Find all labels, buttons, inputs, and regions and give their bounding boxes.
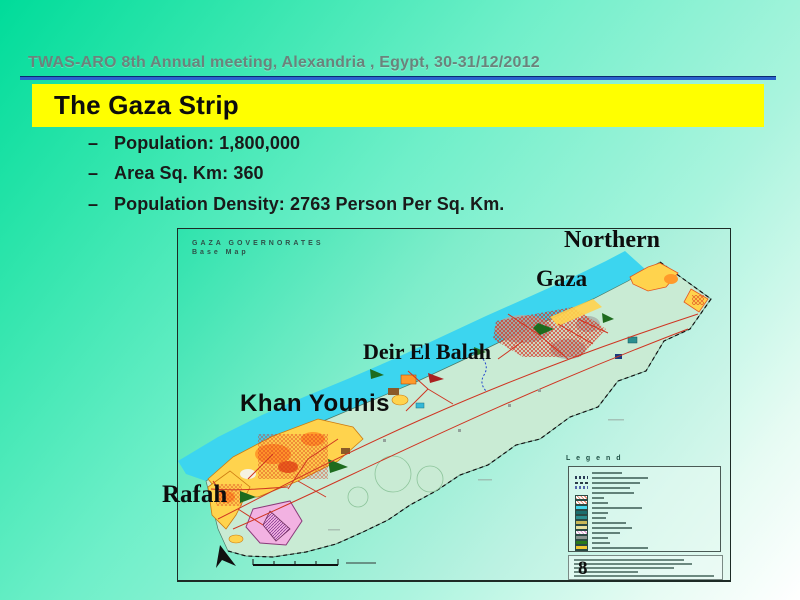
credits-box: [568, 555, 723, 580]
map-corner-title: GAZA GOVERNORATES Base Map: [192, 239, 324, 257]
credits-text-line: [574, 575, 714, 577]
bullet-text: Population Density: 2763 Person Per Sq. …: [114, 194, 504, 215]
legend-symbol-swatch-icon: [575, 550, 588, 552]
legend-item-text: [592, 507, 642, 509]
bullet-list: – Population: 1,800,000 – Area Sq. Km: 3…: [88, 128, 504, 219]
map-label-khan-younis: Khan Younis: [240, 390, 390, 418]
legend-title: L e g e n d: [566, 455, 623, 462]
legend-item-text: [592, 547, 648, 549]
legend-symbol-zigzag-icon: [575, 486, 588, 489]
legend-box: [568, 466, 721, 552]
bullet-item: – Population: 1,800,000: [88, 128, 504, 158]
map-label-deir-el-balah: Deir El Balah: [363, 339, 491, 365]
legend-item-text: [592, 512, 608, 514]
credits-text-line: [574, 559, 684, 561]
map-corner-title-line2: Base Map: [192, 248, 324, 257]
legend-item-text: [592, 502, 608, 504]
legend-item-text: [592, 492, 634, 494]
bullet-dash-icon: –: [88, 133, 114, 154]
legend-item-text: [592, 497, 604, 499]
legend-item-text: [592, 477, 648, 479]
map-label-gaza: Gaza: [536, 266, 587, 292]
bullet-text: Area Sq. Km: 360: [114, 163, 264, 184]
credits-text-line: [574, 563, 692, 565]
legend-item-text: [592, 527, 632, 529]
scale-bar: [253, 559, 376, 565]
legend-item-text: [592, 487, 630, 489]
presentation-slide: TWAS-ARO 8th Annual meeting, Alexandria …: [0, 0, 800, 600]
title-bar: The Gaza Strip: [32, 84, 764, 127]
legend-symbol-zigzag-icon: [575, 476, 588, 479]
legend-item-text: [592, 472, 622, 474]
map-label-rafah: Rafah: [162, 481, 227, 509]
legend-item: [575, 550, 720, 552]
legend-items: [575, 470, 720, 552]
bullet-text: Population: 1,800,000: [114, 133, 300, 154]
legend-item-text: [592, 542, 610, 544]
legend-item-text: [592, 482, 640, 484]
map-corner-title-line1: GAZA GOVERNORATES: [192, 239, 324, 248]
page-title: The Gaza Strip: [54, 90, 239, 121]
legend-symbol-dash-icon: [575, 482, 588, 484]
bullet-dash-icon: –: [88, 194, 114, 215]
slide-header: TWAS-ARO 8th Annual meeting, Alexandria …: [28, 54, 540, 72]
page-number: 8: [578, 558, 588, 580]
bullet-item: – Area Sq. Km: 360: [88, 158, 504, 188]
legend-item-text: [592, 552, 636, 553]
legend-item-text: [592, 532, 620, 534]
bullet-item: – Population Density: 2763 Person Per Sq…: [88, 189, 504, 219]
legend-item-text: [592, 537, 608, 539]
bullet-dash-icon: –: [88, 163, 114, 184]
legend-item-text: [592, 522, 626, 524]
legend-item-text: [592, 517, 606, 519]
credits-text-line: [574, 567, 674, 569]
map-label-northern: Northern: [564, 227, 660, 254]
gaza-map-figure: GAZA GOVERNORATES Base Map Northern Gaza…: [177, 228, 731, 582]
header-divider-line: [20, 76, 776, 80]
